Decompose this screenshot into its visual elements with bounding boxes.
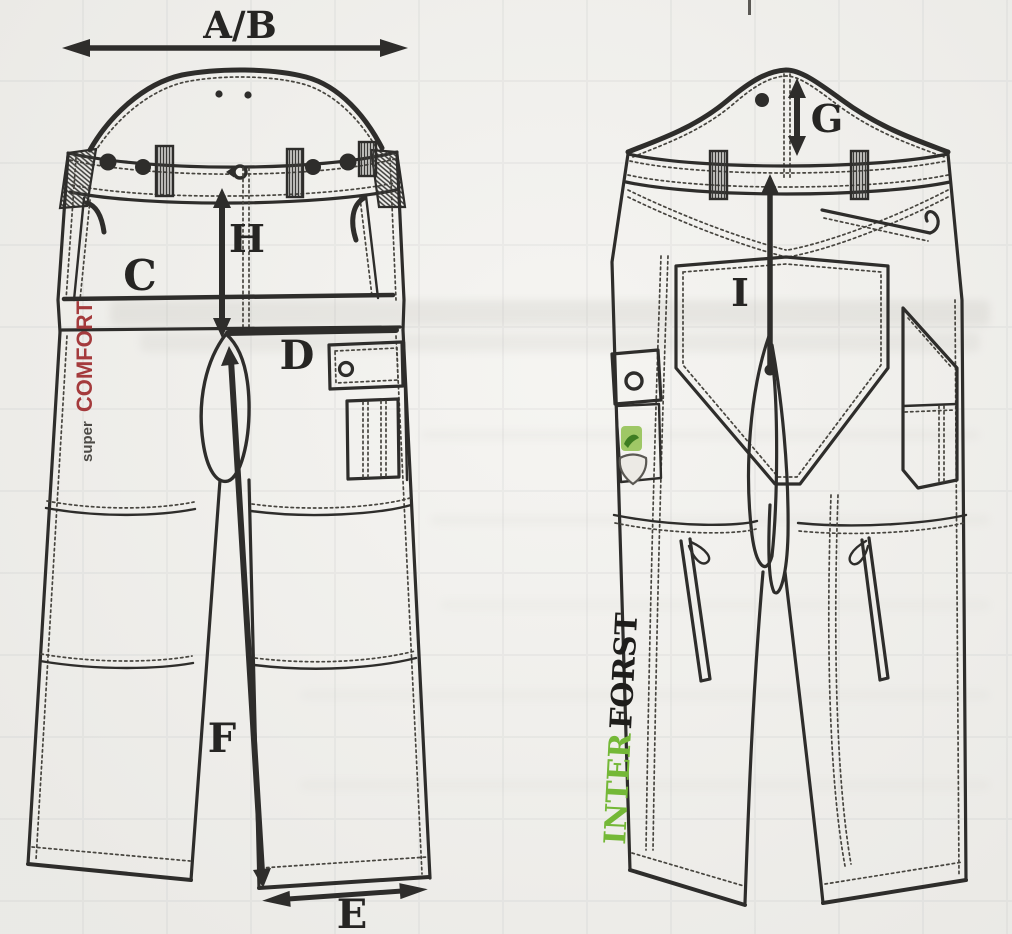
waist-button (100, 154, 117, 171)
front-hem-right-stitch (261, 857, 427, 868)
shin-seam-stitch (41, 654, 192, 661)
measure-d-label: D (280, 332, 315, 379)
knee-seam-stitch (252, 498, 410, 508)
belt-loop (710, 151, 727, 199)
back-button (755, 93, 769, 107)
measure-g-arrow (788, 78, 806, 156)
belt-loop (359, 142, 376, 176)
shin-seam-stitch (255, 651, 415, 662)
front-leg-outer-left-stitch (36, 336, 67, 860)
pants-measurement-diagram: A/B (0, 0, 1012, 934)
back-leg-seam-right (836, 495, 851, 864)
front-leg-outer-left (28, 332, 60, 864)
back-brand-text: INTER FORST (598, 611, 645, 845)
crotch-seam (749, 336, 777, 567)
pen-pocket (347, 399, 399, 479)
pocket-button (340, 363, 353, 376)
seat-panel (676, 257, 888, 484)
leg-vent-right (850, 538, 888, 680)
certification-logo-green (621, 426, 642, 451)
measure-c-line (64, 295, 393, 299)
waist-button (135, 159, 151, 175)
back-thigh-seam (614, 515, 757, 525)
front-hem-left (28, 864, 191, 880)
knee-seam-stitch (47, 501, 194, 508)
belt-loop (156, 146, 173, 196)
back-hem-left-stitch (632, 853, 744, 886)
back-leg-inner-right (785, 572, 823, 903)
back-hem-left (630, 870, 745, 905)
back-waist-bottom-stitch (628, 175, 948, 187)
side-panel-seam (653, 256, 668, 850)
belt-loop (287, 149, 303, 197)
waist-button (340, 154, 357, 171)
back-waist-bottom-seam (626, 182, 950, 194)
belt-loop (851, 151, 868, 199)
front-brand-text: super COMFORT (72, 300, 97, 462)
scan-artifact-tick (748, 0, 751, 15)
front-hem-left-stitch (32, 847, 190, 861)
cargo-pocket-flap (329, 342, 403, 389)
back-hem-right (823, 880, 966, 903)
front-leg-outer-right (403, 330, 430, 878)
measure-ab-label: A/B (202, 3, 277, 47)
waist-button (305, 159, 321, 175)
yoke-seam-left (628, 197, 786, 257)
yoke-seam-left (628, 190, 786, 250)
scanned-page: A/B (0, 0, 1012, 934)
measure-g-label: G (811, 96, 843, 141)
shin-seam (40, 661, 193, 668)
front-pocket-left (74, 198, 104, 300)
leg-vent-left (681, 539, 710, 681)
side-pocket-flap (612, 350, 661, 404)
back-bib-stitch (633, 76, 944, 157)
front-view: A/B (28, 3, 430, 934)
front-pocket-right (353, 196, 378, 298)
back-view: G (598, 70, 966, 905)
back-cargo-pocket (903, 308, 957, 488)
knee-seam (46, 508, 195, 515)
back-leg-inner-left (745, 572, 763, 903)
pocket-side-seam (404, 342, 407, 480)
waistband-bottom-stitch (72, 183, 394, 196)
bib-dot (215, 90, 222, 97)
measure-h-arrow (213, 188, 231, 338)
front-leg-inner-left (191, 480, 220, 880)
back-thigh-seam (798, 515, 966, 525)
measure-e-label: E (337, 891, 368, 934)
bib-dot (244, 91, 251, 98)
front-bib-edge (90, 70, 382, 150)
measure-i-label: I (731, 270, 749, 315)
measure-h-label: H (229, 216, 265, 261)
back-waist-top-seam (628, 154, 948, 166)
measure-f-arrow (221, 346, 271, 888)
measure-f-label: F (208, 715, 236, 762)
pocket-button (626, 373, 642, 389)
measure-c-label: C (123, 251, 156, 300)
